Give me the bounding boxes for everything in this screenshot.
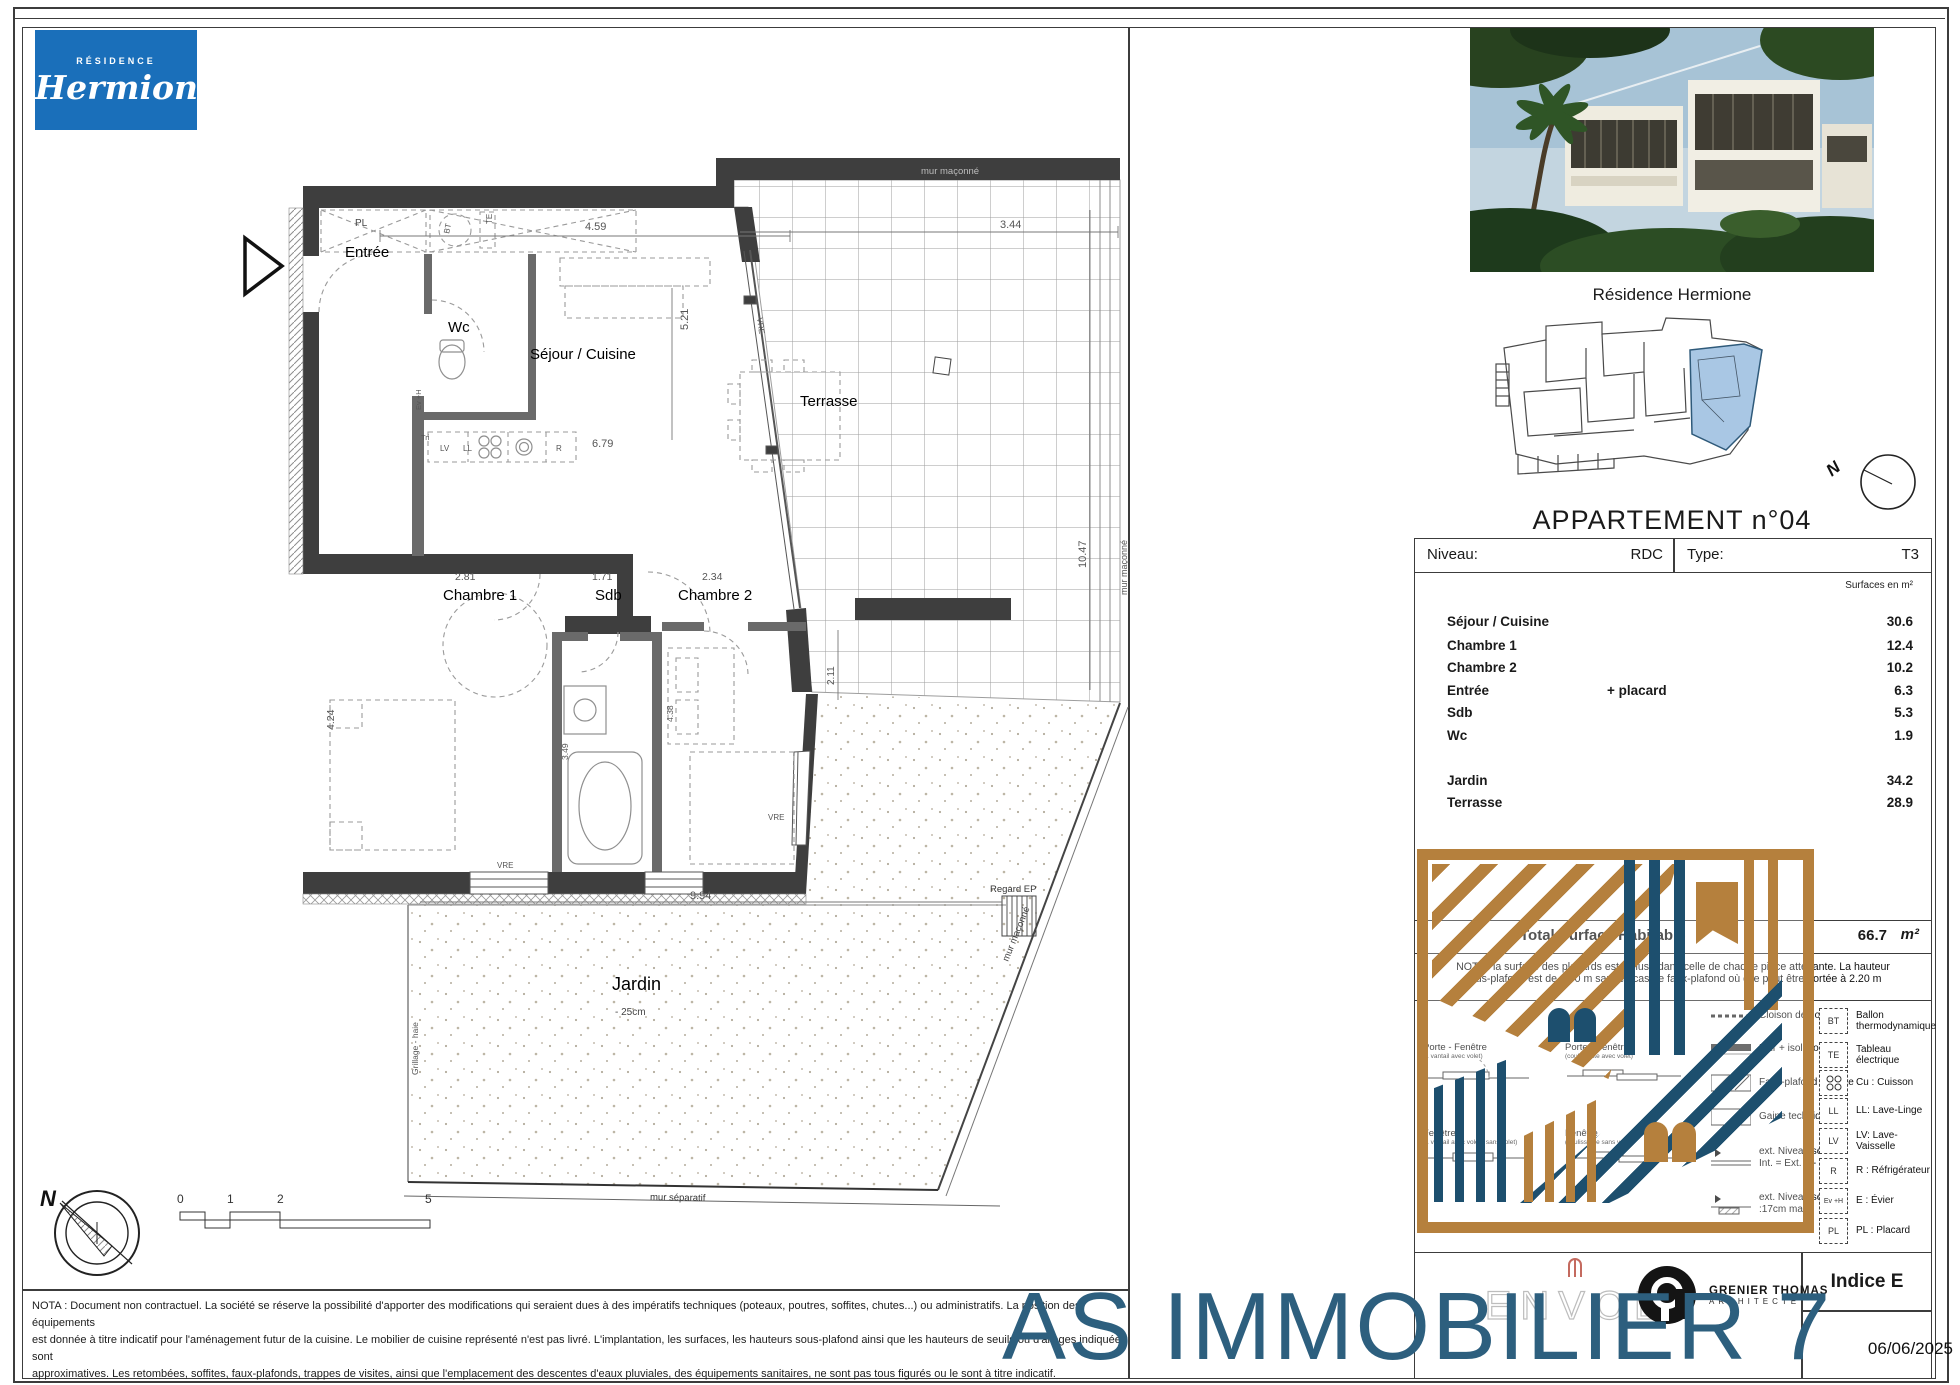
dim-sejour-w: 4.59 xyxy=(585,221,606,233)
dim-ch2-w: 2.34 xyxy=(702,571,723,583)
label-mur-maconne-right: mur maçonné xyxy=(1119,540,1129,595)
surface-label: Sdb xyxy=(1447,705,1473,720)
wall-insulation-left xyxy=(289,208,303,574)
footer-nota-line3: approximatives. Les retombées, soffites,… xyxy=(32,1366,1138,1383)
label-mur-maconne-top: mur maçonné xyxy=(921,166,979,177)
surface-label: Wc xyxy=(1447,728,1467,743)
watermark-skyline-blue xyxy=(1434,1056,1516,1202)
surface-value: 28.9 xyxy=(1887,795,1913,810)
watermark-arch-brown-1 xyxy=(1644,1122,1668,1162)
dim-ch1-w: 2.81 xyxy=(455,571,476,583)
surface-row: Séjour / Cuisine30.6 xyxy=(1447,614,1913,629)
label-jardin: Jardin xyxy=(612,974,661,994)
level-value: RDC xyxy=(1415,546,1663,563)
label-bt: BT xyxy=(442,222,453,234)
dim-jardin-w: 9.94 xyxy=(690,890,711,902)
legend-item: LV LV: Lave-Vaisselle xyxy=(1819,1128,1931,1154)
label-sejour: Séjour / Cuisine xyxy=(530,346,636,363)
surface-value: 6.3 xyxy=(1894,683,1913,698)
label-ev: Ev +H xyxy=(414,389,423,410)
footer-nota-line2: est donnée à titre indicatif pour l'amén… xyxy=(32,1332,1138,1366)
surface-row: Chambre 112.4 xyxy=(1447,638,1913,653)
label-wc: Wc xyxy=(448,319,470,336)
jardin-area xyxy=(404,694,1128,1206)
label-jardin-level: - 25cm xyxy=(615,1007,646,1018)
footer-nota-line1: NOTA : Document non contractuel. La soci… xyxy=(32,1298,1138,1332)
label-entree: Entrée xyxy=(345,244,389,261)
label-te: TE xyxy=(485,214,494,224)
surface-label: Jardin xyxy=(1447,773,1488,788)
watermark-arch-brown-2 xyxy=(1672,1122,1696,1162)
surface-value: 12.4 xyxy=(1887,638,1913,653)
lv-icon: LV xyxy=(1819,1128,1848,1154)
legend-item-label: LV: Lave-Vaisselle xyxy=(1856,1130,1930,1153)
surface-row: Terrasse28.9 xyxy=(1447,795,1913,810)
watermark-arch-blue-2 xyxy=(1574,1008,1596,1042)
dim-ch1-h: 4.24 xyxy=(325,709,337,730)
surface-value: 1.9 xyxy=(1894,728,1913,743)
label-regard-ep: Regard EP xyxy=(990,884,1036,895)
legend-item: PL PL : Placard xyxy=(1819,1218,1931,1244)
surface-value: 5.3 xyxy=(1894,705,1913,720)
label-chambre2: Chambre 2 xyxy=(678,587,752,604)
scale-bar: 0 1 2 5 xyxy=(177,1192,432,1228)
scale-5: 5 xyxy=(425,1192,432,1206)
floorplan-document: RÉSIDENCE Hermione xyxy=(0,0,1960,1385)
placard-icon: PL xyxy=(1819,1218,1848,1244)
dim-cuisine-w: 6.79 xyxy=(592,438,613,450)
total-value: 66.7 xyxy=(1858,927,1887,944)
legend-item-label: E : Évier xyxy=(1856,1195,1930,1207)
dim-sejour-h: 5.21 xyxy=(679,309,691,330)
legend-item: BT Ballon thermodynamique xyxy=(1819,1008,1931,1034)
watermark-arch-blue-1 xyxy=(1548,1008,1570,1042)
legend-item-label: LL: Lave-Linge xyxy=(1856,1105,1930,1117)
surface-label: Séjour / Cuisine xyxy=(1447,614,1549,629)
surface-value: 10.2 xyxy=(1887,660,1913,675)
surface-row: Jardin34.2 xyxy=(1447,773,1913,788)
legend-item: R R : Réfrigérateur xyxy=(1819,1158,1931,1184)
watermark-skyline-brown xyxy=(1524,1100,1596,1202)
label-terrasse: Terrasse xyxy=(800,393,858,410)
legend-item-label: PL : Placard xyxy=(1856,1225,1930,1237)
label-lv: LV xyxy=(440,444,450,453)
legend-item: Ev +H E : Évier xyxy=(1819,1188,1931,1214)
type-value: T3 xyxy=(1675,546,1919,563)
building-render xyxy=(1470,28,1874,272)
scale-2: 2 xyxy=(277,1192,284,1206)
legend-item-label: R : Réfrigérateur xyxy=(1856,1165,1930,1177)
surface-label: Chambre 1 xyxy=(1447,638,1517,653)
scale-1: 1 xyxy=(227,1192,234,1206)
dim-terrasse-h: 10.47 xyxy=(1077,540,1089,568)
te-icon: TE xyxy=(1819,1042,1848,1068)
level-type-table: Niveau: RDC Type: T3 xyxy=(1414,538,1932,573)
legend-item-label: Ballon thermodynamique xyxy=(1856,1010,1930,1033)
label-mur-separatif: mur séparatif xyxy=(650,1192,706,1204)
label-sdb: Sdb xyxy=(595,587,622,604)
legend-item-label: Tableau électrique xyxy=(1856,1044,1930,1067)
render-caption: Résidence Hermione xyxy=(1414,285,1930,305)
footer-nota: NOTA : Document non contractuel. La soci… xyxy=(22,1289,1148,1385)
floor-plan: PL Entrée Wc Séjour / Cuisine Terrasse C… xyxy=(0,0,1130,1290)
surface-label: Entrée xyxy=(1447,683,1489,698)
legend-item-label: Cu : Cuisson xyxy=(1856,1077,1930,1089)
label-tri: Tri xyxy=(421,433,430,442)
surface-value: 30.6 xyxy=(1887,614,1913,629)
surface-label: Chambre 2 xyxy=(1447,660,1517,675)
surface-row: Chambre 210.2 xyxy=(1447,660,1913,675)
surface-value: 34.2 xyxy=(1887,773,1913,788)
legend-item: Cu : Cuisson xyxy=(1819,1070,1931,1096)
agency-watermark-logo xyxy=(1417,849,1814,1233)
entry-arrow-icon xyxy=(245,238,282,294)
site-plan xyxy=(1494,312,1784,494)
surface-row: Entrée+ placard6.3 xyxy=(1447,683,1913,698)
plan-north-label: N xyxy=(40,1186,57,1211)
label-vre-ch1: VRE xyxy=(497,861,513,870)
watermark-stripes-blue-vert xyxy=(1624,860,1690,1055)
surface-row: Wc1.9 xyxy=(1447,728,1913,743)
ll-icon: LL xyxy=(1819,1098,1848,1124)
surface-label: Terrasse xyxy=(1447,795,1502,810)
dim-sdb-w: 1.71 xyxy=(592,571,613,583)
plan-north-compass: N xyxy=(40,1186,139,1275)
total-unit: m² xyxy=(1901,926,1919,943)
surfaces-unit: Surfaces en m² xyxy=(1447,580,1913,591)
label-chambre1: Chambre 1 xyxy=(443,587,517,604)
label-ll: LL xyxy=(463,444,472,453)
label-vre-sejour: VRE xyxy=(755,317,766,335)
label-grillage: Grillage - haie xyxy=(410,1022,420,1075)
scale-0: 0 xyxy=(177,1192,184,1206)
cuisson-icon xyxy=(1819,1070,1848,1096)
surface-row: Sdb5.3 xyxy=(1447,705,1913,720)
legend-item: TE Tableau électrique xyxy=(1819,1042,1931,1068)
dim-terrasse-w: 3.44 xyxy=(1000,219,1021,231)
agency-watermark-text: AS IMMOBILIER 7 xyxy=(1002,1272,1832,1382)
dim-ch2-h: 4.38 xyxy=(665,705,675,722)
apartment-title: APPARTEMENT n°04 xyxy=(1414,505,1930,536)
label-r: R xyxy=(556,444,562,453)
bt-icon: BT xyxy=(1819,1008,1848,1034)
label-pl: PL xyxy=(355,218,368,229)
wall-insulation-bottom xyxy=(303,894,806,904)
refrigerateur-icon: R xyxy=(1819,1158,1848,1184)
legend-item: LL LL: Lave-Linge xyxy=(1819,1098,1931,1124)
label-vre-ch2: VRE xyxy=(768,813,784,822)
watermark-solid-brown xyxy=(1696,882,1738,944)
panel-north-label: N xyxy=(1822,457,1844,480)
evier-icon: Ev +H xyxy=(1819,1188,1848,1214)
surface-extra: + placard xyxy=(1607,683,1667,698)
dim-terrasse-s: 2.11 xyxy=(826,666,837,685)
dim-sdb-h: 3.49 xyxy=(560,743,570,760)
